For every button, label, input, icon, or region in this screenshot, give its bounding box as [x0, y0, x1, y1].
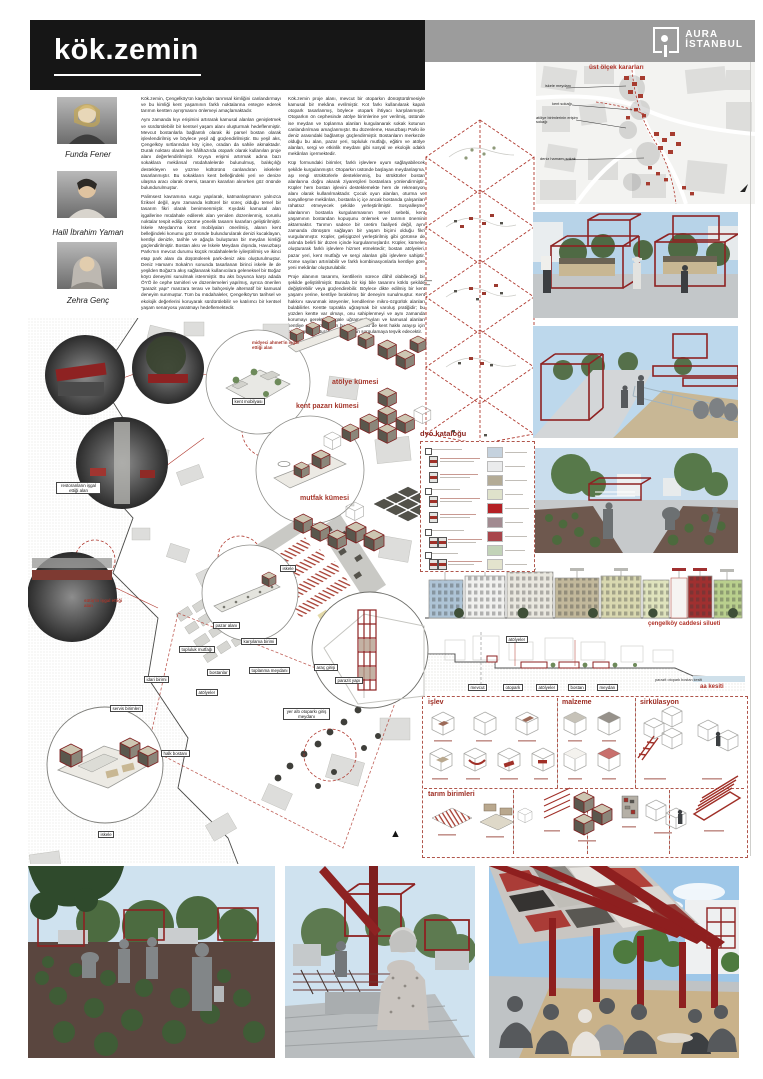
- cluster-label-pazar: kent pazarı kümesi: [296, 403, 359, 410]
- dyo-bucket-icon: [438, 537, 447, 548]
- dyo-catalogue-title: dyo kataloğu: [420, 429, 466, 438]
- section-aa-drawing: [425, 632, 745, 692]
- plan-label-atolyeler: atölyeler: [196, 689, 218, 696]
- dyo-swatch: [487, 461, 503, 472]
- layer-stack-diagram: [424, 62, 536, 444]
- plan-label-halk-bostani: halk bostanı: [161, 750, 190, 757]
- section-label: aa kesiti: [700, 684, 724, 690]
- essay-paragraph: Kök.zemin, Çengelköy'ün kaybolan tarımsa…: [141, 96, 281, 114]
- poster-root: kök.zemin AURA İSTANBUL Funda Fener Hali…: [0, 0, 763, 1079]
- upper-scale-title: üst ölçek kararları: [589, 64, 644, 71]
- map-label-kent-sokagi: kent sokağı: [552, 102, 572, 106]
- dyo-swatch: [487, 517, 503, 528]
- member-name: Funda Fener: [28, 150, 148, 159]
- cluster-axon-diagrams: [288, 316, 434, 566]
- section-tag-bostan: bostan: [568, 684, 586, 691]
- dyo-swatch: [487, 503, 503, 514]
- dyo-swatch-label: [505, 492, 523, 497]
- render-walkway: [533, 326, 738, 438]
- dyo-swatch-label: [505, 548, 525, 553]
- plan-label-parazit-yapi: parazit yapı: [335, 677, 363, 684]
- title-block: kök.zemin: [30, 20, 425, 90]
- dyo-group-a: [425, 448, 432, 455]
- essay-paragraph: Aynı zamanda kıyı erişimini artırarak ka…: [141, 117, 281, 191]
- map-label-iskele-meydani: iskele meydanı: [545, 84, 571, 88]
- dyo-swatch-label: [505, 506, 529, 511]
- render-community-garden: [28, 866, 275, 1058]
- section-sublabel: parazit otopark bostan kesiti: [655, 678, 702, 682]
- dyo-swatch: [487, 559, 503, 570]
- concept-matrix-diagrams: [422, 696, 746, 856]
- dyo-group-b: [425, 488, 432, 495]
- dyo-group-d-title: [432, 551, 466, 556]
- dyo-swatch-label: [505, 450, 527, 455]
- essay-column-1: Kök.zemin, Çengelköy'ün kaybolan tarımsa…: [141, 96, 281, 314]
- plan-label-kent-mobilyasi: kent mobilyası: [232, 398, 265, 405]
- dyo-swatch-label: [505, 534, 527, 539]
- essay-paragraph: Küp formundaki birimler, farklı işlevler…: [288, 160, 425, 271]
- dyo-bucket-icon: [429, 472, 438, 483]
- north-arrow-icon: ▲: [390, 828, 401, 840]
- section-tag-mevcut: mevcut: [468, 684, 487, 691]
- section-tag-otopark: otopark: [503, 684, 523, 691]
- dyo-swatch-label: [505, 562, 527, 567]
- avatar-zehra-genc: [57, 242, 117, 289]
- dyo-swatch-label: [505, 478, 527, 483]
- dyo-swatch: [487, 489, 503, 500]
- avatar-funda-fener: [57, 97, 117, 144]
- plan-label-iskele: iskele: [280, 565, 296, 572]
- section-tag-atolyeler: atölyeler: [536, 684, 558, 691]
- dyo-bucket-icon: [429, 512, 438, 523]
- plan-label-bostanlar: bostanlar: [207, 669, 230, 676]
- member-name: Zehra Genç: [28, 296, 148, 305]
- dyo-group-d: [425, 552, 432, 559]
- dyo-item-text: [440, 496, 482, 504]
- street-silhouette: [425, 568, 745, 624]
- logo-line2: İSTANBUL: [685, 40, 743, 50]
- plan-label-topluluk-mutfagi: topluluk mutfağı: [179, 646, 215, 653]
- plan-label-arac-girisi: araç girişi: [314, 664, 338, 671]
- right-edge-rule: [750, 62, 751, 856]
- member-name: Halil İbrahim Yaman: [28, 228, 148, 237]
- render-deck-pergola: [285, 866, 475, 1058]
- dyo-bucket-icon: [429, 496, 438, 507]
- dyo-catalogue-panel: [420, 441, 535, 572]
- page-title: kök.zemin: [54, 34, 201, 76]
- essay-paragraph: Kök.zemin proje alanı, mevcut bir otopar…: [288, 96, 425, 157]
- plan-label-iskele-2: iskele: [98, 831, 114, 838]
- dyo-bucket-icon: [429, 537, 438, 548]
- essay-column-2: Kök.zemin proje alanı, mevcut bir otopar…: [288, 96, 425, 338]
- render-red-pergola-plaza: [489, 866, 739, 1058]
- dyo-group-b-title: [432, 487, 466, 492]
- dyo-swatch-label: [505, 464, 525, 469]
- plan-label-pazar-alani: pazar alanı: [213, 622, 240, 629]
- dyo-bucket-icon: [429, 559, 438, 570]
- plan-label-karsilama-birimi: karşılama birimi: [241, 638, 277, 645]
- render-market-cluster: [533, 212, 738, 318]
- dyo-swatch: [487, 545, 503, 556]
- section-tag-meydan: meydan: [597, 684, 618, 691]
- map-label-atolye-erisim: atölye birimlerinin erişim sokağı: [536, 116, 580, 125]
- dyo-item-text: [440, 472, 482, 480]
- dyo-group-a-title: [432, 447, 466, 452]
- section-top-tag: atölyeler: [506, 636, 528, 643]
- dyo-bucket-icon: [429, 456, 438, 467]
- aura-istanbul-logo: AURA İSTANBUL: [653, 27, 743, 53]
- dyo-item-text: [448, 559, 484, 567]
- dyo-item-text: [448, 537, 484, 545]
- matrix-title-islev: işlev: [428, 699, 444, 706]
- plan-annotation-restoran: restoranların işgal ettiği alan: [56, 482, 101, 494]
- dyo-item-text: [440, 456, 482, 464]
- cluster-label-mutfak: mutfak kümesi: [300, 495, 349, 502]
- cluster-label-atolye: atölye kümesi: [332, 379, 378, 386]
- aura-logo-text: AURA İSTANBUL: [685, 30, 743, 50]
- map-label-deniz-hamami: deniz hamamı sokak: [540, 157, 576, 161]
- dyo-bucket-icon: [438, 559, 447, 570]
- dyo-swatch: [487, 531, 503, 542]
- avatar-halil-ibrahim-yaman: [57, 171, 117, 218]
- dyo-item-text: [440, 512, 482, 520]
- aura-logo-icon: [653, 27, 679, 53]
- dyo-swatch-label: [505, 520, 523, 525]
- plan-annotation-midyeci: midyeci ahmet'in işgal ettiği alan: [252, 340, 304, 350]
- dyo-group-c-title: [432, 528, 466, 533]
- dyo-swatch: [487, 447, 503, 458]
- plan-label-toplanma-meydani: toplanma meydanı: [249, 667, 290, 674]
- matrix-title-sirkulasyon: sirkülasyon: [640, 699, 679, 706]
- dyo-swatch: [487, 475, 503, 486]
- render-bostan-garden: [533, 448, 738, 553]
- plan-annotation-sutis: sütiş'in işgal ettiği alan: [84, 598, 126, 608]
- essay-paragraph: Palimsest kavramına vurgu yapılarak, kat…: [141, 194, 281, 311]
- plan-label-servis-birimleri: servis birimleri: [110, 705, 143, 712]
- matrix-title-malzeme: malzeme: [562, 699, 592, 706]
- plan-label-idari-birimi: idari birimi: [144, 676, 169, 683]
- silhouette-label: çengelköy caddesi silueti: [648, 621, 720, 627]
- header-gray-bar: AURA İSTANBUL: [425, 20, 755, 62]
- matrix-title-tarim: tarım birimleri: [428, 791, 475, 798]
- dyo-group-c: [425, 529, 432, 536]
- plan-label-yeralti-otoparki: yer altı otoparkı giriş meydanı: [283, 708, 330, 720]
